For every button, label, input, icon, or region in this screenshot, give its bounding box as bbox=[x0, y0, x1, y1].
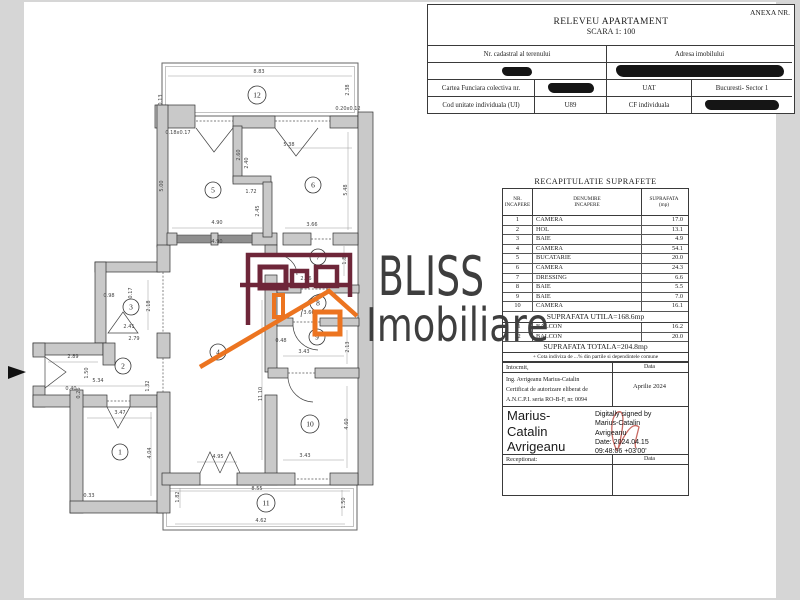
floorplan-drawing: 1234567891011128.832.380.130.18x0.170.20… bbox=[0, 0, 420, 600]
anexa-label: ANEXA NR. bbox=[750, 8, 790, 17]
text-line: Marius- bbox=[507, 408, 565, 424]
surface-table-cell: HOL bbox=[533, 226, 642, 235]
watermark-imobiliare: Imobiliare bbox=[366, 302, 549, 348]
engineer-row: Ing. Avrigeanu Marius-CatalinCertificat … bbox=[503, 373, 688, 407]
room-number-label: 11 bbox=[257, 494, 275, 512]
surface-table-cell: 7 bbox=[503, 274, 533, 283]
dimension-label: 0.48 bbox=[275, 338, 286, 344]
text-line: A.N.C.P.I. seria RO-B-F, nr. 0094 bbox=[506, 395, 612, 405]
surface-table-cell: 4 bbox=[503, 245, 533, 254]
surface-table-cell: CAMERA bbox=[533, 302, 642, 311]
svg-text:2: 2 bbox=[121, 362, 125, 371]
dimension-label: 0.18x0.17 bbox=[165, 130, 190, 136]
surface-table-cell: 3 bbox=[503, 235, 533, 244]
surface-table-cell: 6 bbox=[503, 264, 533, 273]
dimension-label: 5.38 bbox=[283, 142, 294, 148]
dimension-label: 1.82 bbox=[175, 491, 181, 502]
surface-table-cell: 20.0 bbox=[642, 333, 686, 342]
dimension-label: 8.55 bbox=[251, 486, 262, 492]
text-line: Avrigeanu bbox=[507, 439, 565, 455]
cod-unitate-value: U89 bbox=[535, 97, 607, 113]
svg-text:1: 1 bbox=[118, 448, 122, 457]
text-line: Catalin bbox=[507, 424, 565, 440]
room-number-label: 10 bbox=[301, 415, 319, 433]
cadastral-grid: Nr. cadastral al terenului Adresa imobil… bbox=[428, 45, 794, 113]
receptionat-row: Receptionat: Data bbox=[503, 455, 688, 465]
watermark-bliss: BLISS bbox=[378, 250, 484, 304]
dimension-label: 3.47 bbox=[114, 410, 125, 416]
window-opening-lines bbox=[107, 121, 333, 479]
dimension-label: 8.83 bbox=[253, 69, 264, 75]
svg-text:11: 11 bbox=[262, 499, 269, 508]
col-header-line: INCAPERE bbox=[503, 202, 532, 208]
surface-table-row: 7DRESSING6.6 bbox=[503, 274, 688, 284]
cod-unitate-label: Cod unitate individuala (UI) bbox=[428, 97, 535, 113]
uat-value: Bucuresti- Sector 1 bbox=[692, 80, 792, 97]
redaction-blob bbox=[616, 65, 784, 77]
adresa-label: Adresa imobilului bbox=[607, 46, 792, 63]
cota-indiviza-note: + Cota indiviza de ...% din partile si d… bbox=[503, 353, 688, 363]
engineer-credentials: Ing. Avrigeanu Marius-CatalinCertificat … bbox=[503, 373, 613, 406]
surface-table-cell: 1 bbox=[503, 216, 533, 225]
dimension-label: 5.48 bbox=[343, 184, 349, 195]
surface-table-row: 8BAIE5.5 bbox=[503, 283, 688, 293]
dimension-label: 2.89 bbox=[67, 354, 78, 360]
dimension-label: 2.18 bbox=[146, 300, 152, 311]
redaction-blob bbox=[548, 83, 594, 93]
cf-individuala-label: CF individuala bbox=[607, 97, 692, 113]
surface-table-cell: CAMERA bbox=[533, 245, 642, 254]
surface-table-cell: 54.1 bbox=[642, 245, 686, 254]
empty-cell bbox=[613, 465, 686, 495]
redaction-blob bbox=[502, 67, 532, 76]
dimension-label: 1.72 bbox=[245, 189, 256, 195]
dimension-label: 1.50 bbox=[341, 497, 347, 508]
empty-signature-cells bbox=[503, 465, 688, 495]
svg-text:3: 3 bbox=[129, 303, 133, 312]
receptionat-label: Receptionat: bbox=[503, 455, 613, 464]
surface-table-cell: 7.0 bbox=[642, 293, 686, 302]
surface-table-cell: 5.5 bbox=[642, 283, 686, 292]
dimension-label: 5.00 bbox=[159, 180, 165, 191]
surface-table-cell: CAMERA bbox=[533, 264, 642, 273]
dimension-label: 2.40 bbox=[244, 157, 250, 168]
digital-signature-stamp: Digitally signed byMarius-CatalinAvrigea… bbox=[595, 410, 687, 456]
dimension-label: 4.90 bbox=[211, 220, 222, 226]
dimension-label: 1.32 bbox=[145, 380, 151, 391]
surface-table-cell: 5 bbox=[503, 254, 533, 263]
col-header-suprafata: SUPRAFATA (mp) bbox=[642, 189, 686, 215]
scanned-document-page: 1234567891011128.832.380.130.18x0.170.20… bbox=[0, 0, 800, 600]
nr-cadastral-label: Nr. cadastral al terenului bbox=[428, 46, 607, 63]
surface-table-cell: 13.1 bbox=[642, 226, 686, 235]
surface-table-cell: 8 bbox=[503, 283, 533, 292]
surface-table-cell: CAMERA bbox=[533, 216, 642, 225]
surface-table-row: 1CAMERA17.0 bbox=[503, 216, 688, 226]
surface-table-cell: 2 bbox=[503, 226, 533, 235]
surface-table-cell: BAIE bbox=[533, 293, 642, 302]
redaction-blob bbox=[705, 100, 779, 110]
document-title: RELEVEU APARTAMENT bbox=[428, 5, 794, 27]
surface-table-row: 5BUCATARIE20.0 bbox=[503, 254, 688, 264]
dimension-label: 4.62 bbox=[255, 518, 266, 524]
data-label-2: Data bbox=[613, 455, 686, 464]
dimension-label: 0.40 bbox=[65, 386, 76, 392]
text-line: Marius-Catalin bbox=[595, 419, 687, 428]
text-line: Certificat de autorizare eliberat de bbox=[506, 385, 612, 395]
dimension-label: 2.38 bbox=[345, 84, 351, 95]
surfaces-header-row: NR. INCAPERE DENUMIRE INCAPERE SUPRAFATA… bbox=[503, 189, 688, 216]
dimension-label: 4.90 bbox=[211, 239, 222, 245]
surface-table-row: 4CAMERA54.1 bbox=[503, 245, 688, 255]
dimension-label: 4.95 bbox=[212, 454, 223, 460]
dimension-label: 0.17 bbox=[128, 287, 134, 298]
room-number-label: 6 bbox=[305, 177, 321, 193]
dimension-label: 2.79 bbox=[128, 336, 139, 342]
dimension-label: 3.43 bbox=[298, 349, 309, 355]
text-line: Date: 2024.04.15 bbox=[595, 438, 687, 447]
text-line: 09:48:06 +03'00' bbox=[595, 447, 687, 456]
uat-label: UAT bbox=[607, 80, 692, 97]
balcony-inner-lines bbox=[166, 67, 355, 527]
room-number-label: 5 bbox=[205, 182, 221, 198]
text-line: Ing. Avrigeanu Marius-Catalin bbox=[506, 375, 612, 385]
nr-cadastral-value-redacted bbox=[428, 63, 607, 80]
empty-cell bbox=[503, 465, 613, 495]
dimension-label: 0.26 bbox=[76, 387, 82, 398]
signature-row: Marius-CatalinAvrigeanu Digitally signed… bbox=[503, 407, 688, 455]
surface-table-cell: 16.2 bbox=[642, 323, 686, 332]
surfaces-title: RECAPITULATIE SUPRAFETE bbox=[502, 177, 689, 186]
header-info-table: ANEXA NR. RELEVEU APARTAMENT SCARA 1: 10… bbox=[427, 4, 795, 114]
col-header-nr: NR. INCAPERE bbox=[503, 189, 533, 215]
dimension-label: 1.50 bbox=[84, 367, 90, 378]
svg-text:10: 10 bbox=[306, 420, 314, 429]
room-number-label: 3 bbox=[123, 299, 139, 315]
room-number-label: 2 bbox=[115, 358, 131, 374]
dimension-label: 2.41 bbox=[123, 324, 134, 330]
dimension-label: 2.60 bbox=[236, 149, 242, 160]
surface-table-cell: BALCON bbox=[533, 333, 642, 342]
surface-table-row: 2HOL13.1 bbox=[503, 226, 688, 236]
svg-text:6: 6 bbox=[311, 181, 315, 190]
dimension-label: 3.43 bbox=[299, 453, 310, 459]
surface-table-cell: BUCATARIE bbox=[533, 254, 642, 263]
dimension-label: 0.20x0.12 bbox=[335, 106, 360, 112]
dimension-label: 5.34 bbox=[92, 378, 103, 384]
svg-text:5: 5 bbox=[211, 186, 215, 195]
text-line: Digitally signed by bbox=[595, 410, 687, 419]
svg-text:12: 12 bbox=[253, 91, 261, 100]
surface-table-cell: 20.0 bbox=[642, 254, 686, 263]
signer-name: Marius-CatalinAvrigeanu bbox=[507, 408, 565, 455]
cartea-funciara-value-redacted bbox=[535, 80, 607, 97]
data-label: Data bbox=[613, 363, 686, 372]
dimension-label: 0.13 bbox=[158, 94, 164, 105]
surface-table-cell: 24.3 bbox=[642, 264, 686, 273]
document-scale: SCARA 1: 100 bbox=[428, 27, 794, 36]
adresa-value-redacted bbox=[607, 63, 792, 80]
surface-table-cell: BALCON bbox=[533, 323, 642, 332]
surface-table-row: 6CAMERA24.3 bbox=[503, 264, 688, 274]
cartea-funciara-label: Cartea Funciara colectiva nr. bbox=[428, 80, 535, 97]
dimension-label: 11.10 bbox=[258, 387, 264, 401]
surface-table-cell: 16.1 bbox=[642, 302, 686, 311]
room-number-label: 1 bbox=[112, 444, 128, 460]
intocmit-label: Intocmit, bbox=[503, 363, 613, 372]
dimension-label: 0.33 bbox=[83, 493, 94, 499]
surface-table-cell: 4.9 bbox=[642, 235, 686, 244]
dimension-label: 4.60 bbox=[344, 418, 350, 429]
surface-table-cell: 6.6 bbox=[642, 274, 686, 283]
surface-table-cell: BAIE bbox=[533, 235, 642, 244]
document-date: Aprilie 2024 bbox=[613, 373, 686, 406]
col-header-line: INCAPERE bbox=[533, 202, 641, 208]
intocmit-row: Intocmit, Data bbox=[503, 363, 688, 373]
dimension-label: 2.45 bbox=[255, 205, 261, 216]
cf-individuala-value-redacted bbox=[692, 97, 792, 113]
text-line: Avrigeanu bbox=[595, 429, 687, 438]
dimension-label: 3.66 bbox=[306, 222, 317, 228]
surface-table-cell: BAIE bbox=[533, 283, 642, 292]
col-header-denumire: DENUMIRE INCAPERE bbox=[533, 189, 642, 215]
surface-table-cell: DRESSING bbox=[533, 274, 642, 283]
entrance-arrow-icon bbox=[8, 366, 26, 379]
room-number-label: 12 bbox=[248, 86, 266, 104]
dimension-label: 0.98 bbox=[103, 293, 114, 299]
surface-table-row: 3BAIE4.9 bbox=[503, 235, 688, 245]
dimension-label: 4.04 bbox=[147, 447, 153, 458]
header-title-area: ANEXA NR. RELEVEU APARTAMENT SCARA 1: 10… bbox=[428, 5, 794, 45]
dimension-label: 2.13 bbox=[345, 341, 351, 352]
surface-table-cell: 17.0 bbox=[642, 216, 686, 225]
col-header-line: (mp) bbox=[642, 202, 686, 208]
